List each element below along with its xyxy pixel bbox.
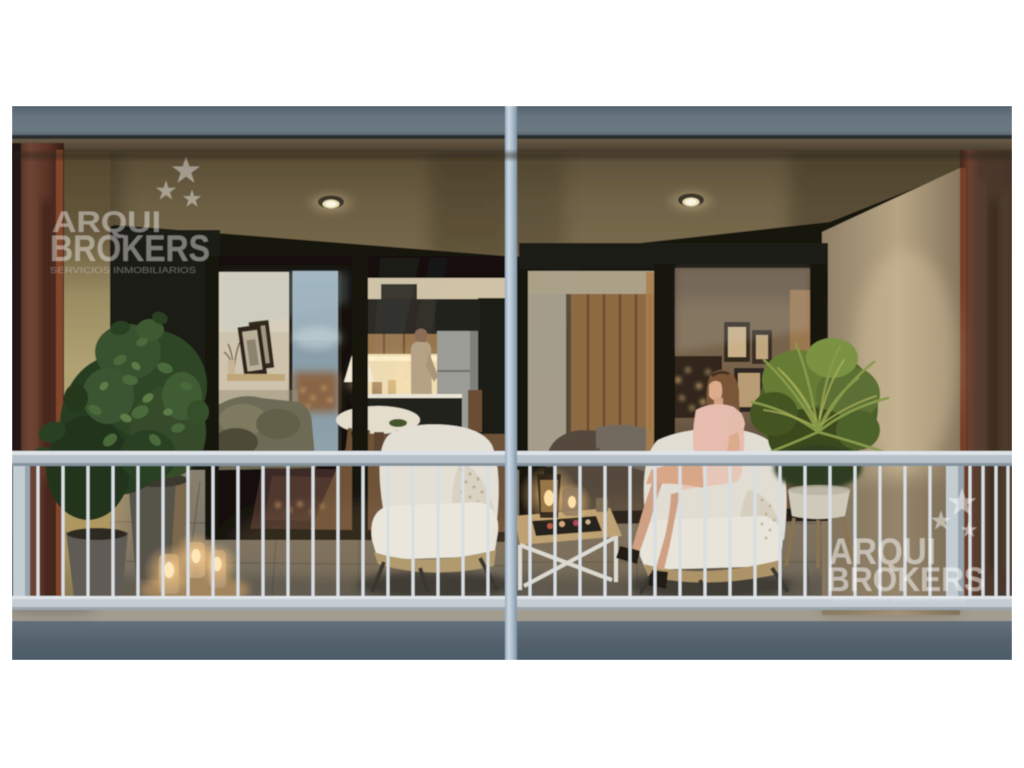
svg-text:BROKERS: BROKERS	[50, 228, 210, 269]
svg-text:SERVICIOS INMOBILIARIOS: SERVICIOS INMOBILIARIOS	[50, 265, 196, 275]
svg-text:SERVICIOS INMOBILIARIOS: SERVICIOS INMOBILIARIOS	[833, 597, 966, 604]
svg-text:BROKERS: BROKERS	[827, 561, 985, 599]
